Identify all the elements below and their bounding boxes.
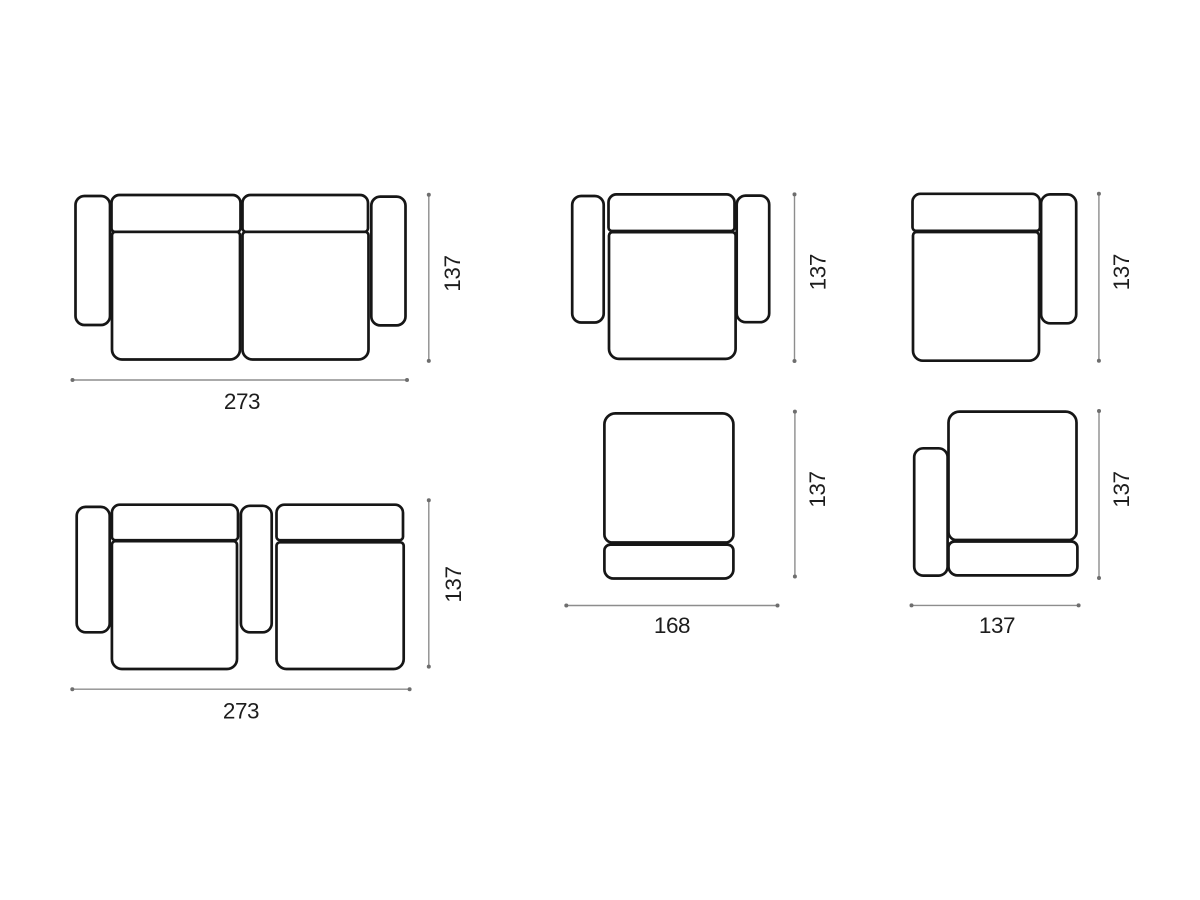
svg-text:137: 137 — [805, 254, 830, 290]
svg-text:137: 137 — [979, 613, 1015, 638]
svg-text:137: 137 — [441, 566, 466, 602]
svg-text:137: 137 — [1109, 471, 1134, 507]
svg-text:137: 137 — [805, 471, 830, 507]
svg-text:137: 137 — [440, 255, 465, 291]
svg-text:273: 273 — [224, 389, 260, 414]
svg-text:168: 168 — [654, 613, 690, 638]
svg-text:273: 273 — [223, 699, 259, 724]
svg-text:137: 137 — [1109, 254, 1134, 290]
